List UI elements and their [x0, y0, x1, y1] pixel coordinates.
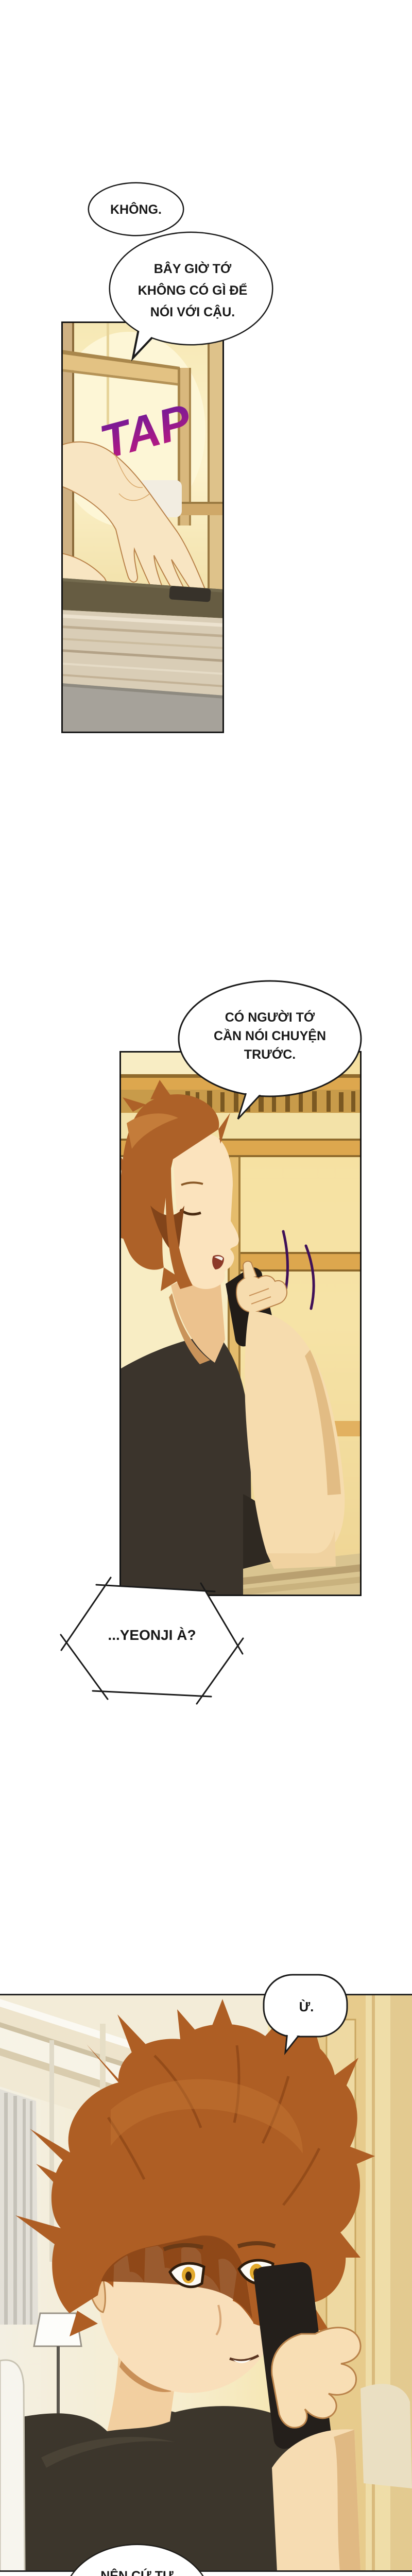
svg-text:Ừ.: Ừ. [299, 1999, 314, 2014]
svg-text:KHÔNG.: KHÔNG. [110, 201, 162, 217]
svg-text:...YEONJI À?: ...YEONJI À? [108, 1627, 196, 1643]
svg-text:NÊN CỨ TỰ: NÊN CỨ TỰ [100, 2568, 174, 2576]
svg-text:CÓ NGƯỜI TỚ: CÓ NGƯỜI TỚ [225, 1009, 315, 1025]
svg-text:BÂY GIỜ TỚ: BÂY GIỜ TỚ [154, 261, 232, 276]
svg-text:TRƯỚC.: TRƯỚC. [244, 1046, 296, 1062]
svg-text:NÓI VỚI CẬU.: NÓI VỚI CẬU. [150, 304, 235, 319]
svg-text:CẦN NÓI CHUYỆN: CẦN NÓI CHUYỆN [214, 1028, 326, 1043]
svg-text:KHÔNG CÓ GÌ ĐỂ: KHÔNG CÓ GÌ ĐỂ [138, 282, 248, 298]
